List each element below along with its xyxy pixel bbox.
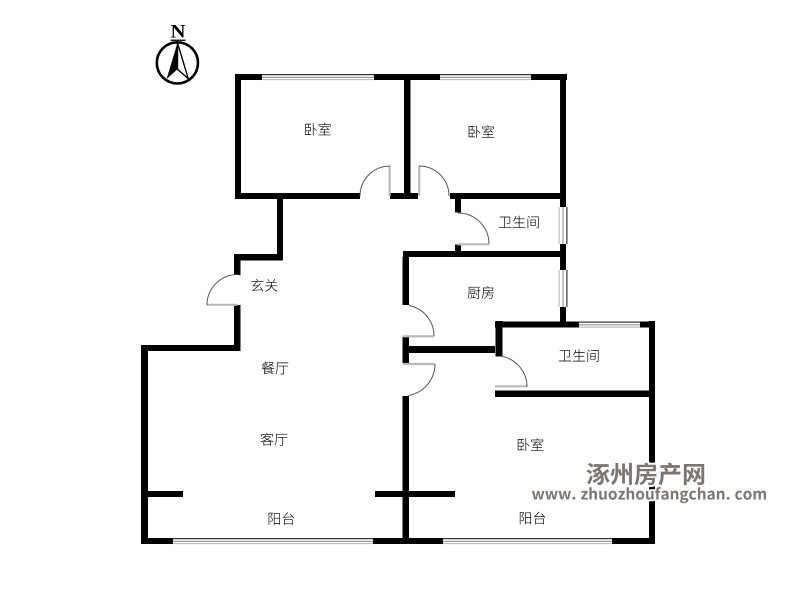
svg-text:N: N (171, 22, 186, 43)
